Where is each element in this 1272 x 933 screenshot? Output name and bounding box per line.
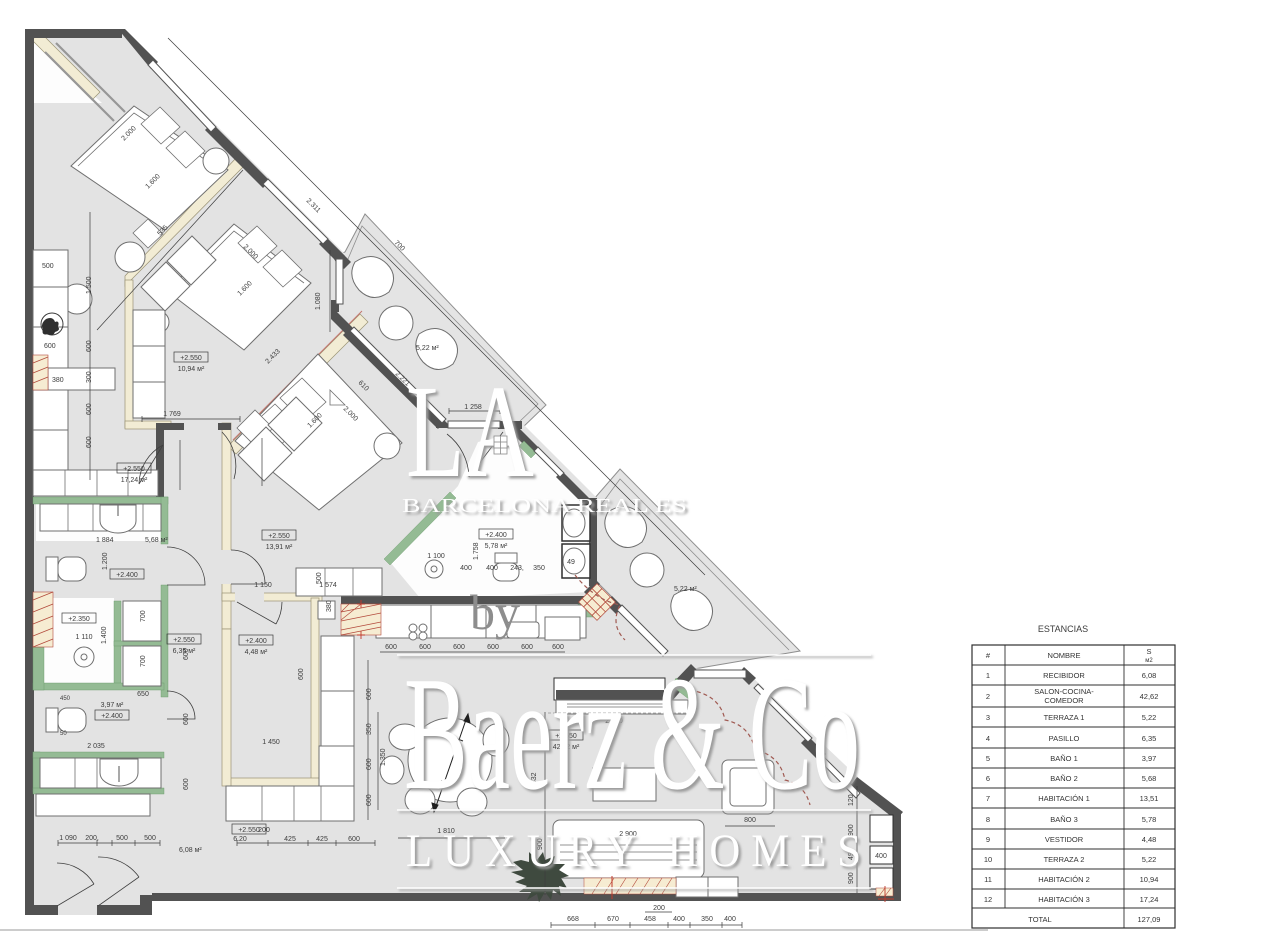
svg-text:HABITACIÓN 3: HABITACIÓN 3	[1038, 895, 1090, 904]
svg-text:9: 9	[986, 835, 990, 844]
svg-text:TERRAZA 1: TERRAZA 1	[1044, 713, 1085, 722]
svg-text:3,97 м²: 3,97 м²	[101, 702, 124, 709]
svg-text:600: 600	[86, 436, 93, 448]
svg-text:1 110: 1 110	[76, 634, 93, 641]
svg-text:м2: м2	[1145, 658, 1153, 664]
svg-text:425: 425	[316, 836, 328, 843]
svg-text:13,91 м²: 13,91 м²	[266, 544, 293, 551]
svg-text:BARCELONA REAL ES: BARCELONA REAL ES	[402, 495, 687, 517]
svg-text:5,68: 5,68	[1142, 774, 1157, 783]
svg-text:+2.550: +2.550	[238, 827, 260, 834]
svg-text:PASILLO: PASILLO	[1049, 734, 1080, 743]
svg-text:1.400: 1.400	[101, 626, 108, 644]
svg-text:6,08 м²: 6,08 м²	[179, 847, 202, 854]
svg-text:1 090: 1 090	[59, 835, 77, 842]
svg-text:1.080: 1.080	[315, 292, 322, 310]
svg-text:17,24: 17,24	[1140, 895, 1159, 904]
svg-text:4,48 м²: 4,48 м²	[245, 649, 268, 656]
svg-text:2 035: 2 035	[87, 743, 105, 750]
svg-text:1 150: 1 150	[254, 582, 272, 589]
svg-text:Baerz & Co: Baerz & Co	[404, 644, 860, 824]
svg-text:1 769: 1 769	[163, 411, 181, 418]
svg-text:10,94 м²: 10,94 м²	[178, 366, 205, 373]
svg-text:500: 500	[42, 263, 54, 270]
svg-text:1 500: 1 500	[86, 276, 93, 294]
svg-text:7: 7	[986, 794, 990, 803]
svg-text:5,68 м²: 5,68 м²	[145, 537, 168, 544]
svg-text:HABITACIÓN 1: HABITACIÓN 1	[1038, 794, 1090, 803]
svg-text:6,35: 6,35	[1142, 734, 1157, 743]
svg-text:600: 600	[298, 668, 305, 680]
svg-text:350: 350	[366, 723, 373, 735]
svg-text:50: 50	[60, 731, 67, 737]
svg-text:by: by	[470, 584, 520, 640]
svg-text:8: 8	[986, 815, 990, 824]
svg-text:5: 5	[986, 754, 990, 763]
svg-text:400: 400	[486, 565, 498, 572]
svg-text:600: 600	[366, 758, 373, 770]
svg-text:RECIBIDOR: RECIBIDOR	[1043, 671, 1085, 680]
svg-text:SALON-COCINA-: SALON-COCINA-	[1034, 687, 1094, 696]
svg-text:TOTAL: TOTAL	[1028, 915, 1051, 924]
svg-text:600: 600	[183, 648, 190, 660]
svg-text:+2.400: +2.400	[101, 713, 123, 720]
svg-text:200,: 200,	[85, 835, 99, 842]
svg-text:+2.400: +2.400	[245, 638, 267, 645]
svg-text:400: 400	[460, 565, 472, 572]
svg-text:243,: 243,	[510, 565, 524, 572]
svg-text:600: 600	[44, 343, 56, 350]
svg-text:1 100: 1 100	[427, 553, 445, 560]
svg-text:17,24 м²: 17,24 м²	[121, 477, 148, 484]
svg-text:600: 600	[366, 688, 373, 700]
svg-text:BAÑO 1: BAÑO 1	[1050, 754, 1078, 763]
svg-text:400: 400	[673, 916, 685, 923]
svg-text:ESTANCIAS: ESTANCIAS	[1038, 624, 1088, 634]
svg-text:S: S	[1146, 647, 1151, 656]
svg-text:5,22: 5,22	[1142, 713, 1157, 722]
svg-text:500: 500	[116, 835, 128, 842]
svg-text:COMEDOR: COMEDOR	[1044, 696, 1084, 705]
svg-text:600: 600	[183, 778, 190, 790]
svg-text:670: 670	[607, 916, 619, 923]
svg-text:425: 425	[284, 836, 296, 843]
svg-text:3,97: 3,97	[1142, 754, 1157, 763]
svg-text:458: 458	[644, 916, 656, 923]
svg-text:5,22 м²: 5,22 м²	[674, 586, 697, 593]
svg-text:6,08: 6,08	[1142, 671, 1157, 680]
svg-text:400: 400	[724, 916, 736, 923]
svg-text:+2.400: +2.400	[485, 532, 507, 539]
svg-text:380: 380	[326, 600, 333, 612]
svg-text:12: 12	[984, 895, 992, 904]
svg-text:5,78: 5,78	[1142, 815, 1157, 824]
svg-text:4: 4	[986, 734, 990, 743]
svg-text:5,78 м²: 5,78 м²	[485, 543, 508, 550]
svg-text:LA: LA	[406, 357, 534, 505]
svg-text:+2.350: +2.350	[68, 616, 90, 623]
svg-text:500: 500	[144, 835, 156, 842]
svg-text:VESTIDOR: VESTIDOR	[1045, 835, 1084, 844]
svg-text:500: 500	[316, 572, 323, 584]
svg-text:#: #	[986, 651, 991, 660]
svg-text:600: 600	[366, 794, 373, 806]
svg-text:450: 450	[60, 696, 71, 702]
svg-text:350: 350	[533, 565, 545, 572]
svg-text:42,62: 42,62	[1140, 692, 1159, 701]
svg-text:2.311: 2.311	[305, 197, 322, 214]
svg-text:700: 700	[140, 655, 147, 667]
svg-text:+2.550: +2.550	[180, 355, 202, 362]
svg-text:10,94: 10,94	[1140, 875, 1159, 884]
svg-text:HABITACIÓN 2: HABITACIÓN 2	[1038, 875, 1090, 884]
svg-text:3: 3	[986, 713, 990, 722]
svg-text:1.200: 1.200	[102, 552, 109, 570]
svg-text:+2.550: +2.550	[173, 637, 195, 644]
svg-text:668: 668	[567, 916, 579, 923]
svg-text:127,09: 127,09	[1138, 915, 1161, 924]
svg-text:5,22: 5,22	[1142, 855, 1157, 864]
svg-text:350: 350	[701, 916, 713, 923]
svg-text:200: 200	[653, 905, 665, 912]
svg-text:BAÑO 2: BAÑO 2	[1050, 774, 1078, 783]
svg-text:1.758: 1.758	[473, 542, 480, 560]
svg-text:+2.550: +2.550	[123, 466, 145, 473]
svg-text:13,51: 13,51	[1140, 794, 1159, 803]
svg-text:300: 300	[86, 371, 93, 383]
svg-text:2: 2	[986, 692, 990, 701]
svg-text:380: 380	[52, 377, 64, 384]
svg-text:BAÑO 3: BAÑO 3	[1050, 815, 1078, 824]
svg-text:1.350: 1.350	[380, 748, 387, 766]
svg-text:600: 600	[385, 644, 397, 651]
svg-text:TERRAZA 2: TERRAZA 2	[1044, 855, 1085, 864]
svg-text:200: 200	[258, 827, 270, 834]
svg-text:NOMBRE: NOMBRE	[1048, 651, 1081, 660]
svg-text:11: 11	[984, 875, 992, 884]
svg-text:10: 10	[984, 855, 992, 864]
svg-text:600: 600	[86, 403, 93, 415]
svg-text:49: 49	[567, 559, 575, 566]
svg-text:400: 400	[875, 853, 887, 860]
svg-text:LUXURY HOMES: LUXURY HOMES	[406, 825, 872, 877]
svg-text:1: 1	[986, 671, 990, 680]
svg-text:1 884: 1 884	[96, 537, 114, 544]
svg-text:650: 650	[137, 691, 149, 698]
svg-text:5,22 м²: 5,22 м²	[416, 345, 439, 352]
svg-text:600: 600	[183, 713, 190, 725]
svg-text:600: 600	[348, 836, 360, 843]
svg-text:6: 6	[986, 774, 990, 783]
svg-text:+2.400: +2.400	[116, 572, 138, 579]
svg-text:4,48: 4,48	[1142, 835, 1157, 844]
svg-text:6.20: 6.20	[233, 836, 247, 843]
svg-text:+2.550: +2.550	[268, 533, 290, 540]
svg-text:1 450: 1 450	[262, 739, 280, 746]
svg-text:600: 600	[86, 340, 93, 352]
svg-text:700: 700	[140, 610, 147, 622]
